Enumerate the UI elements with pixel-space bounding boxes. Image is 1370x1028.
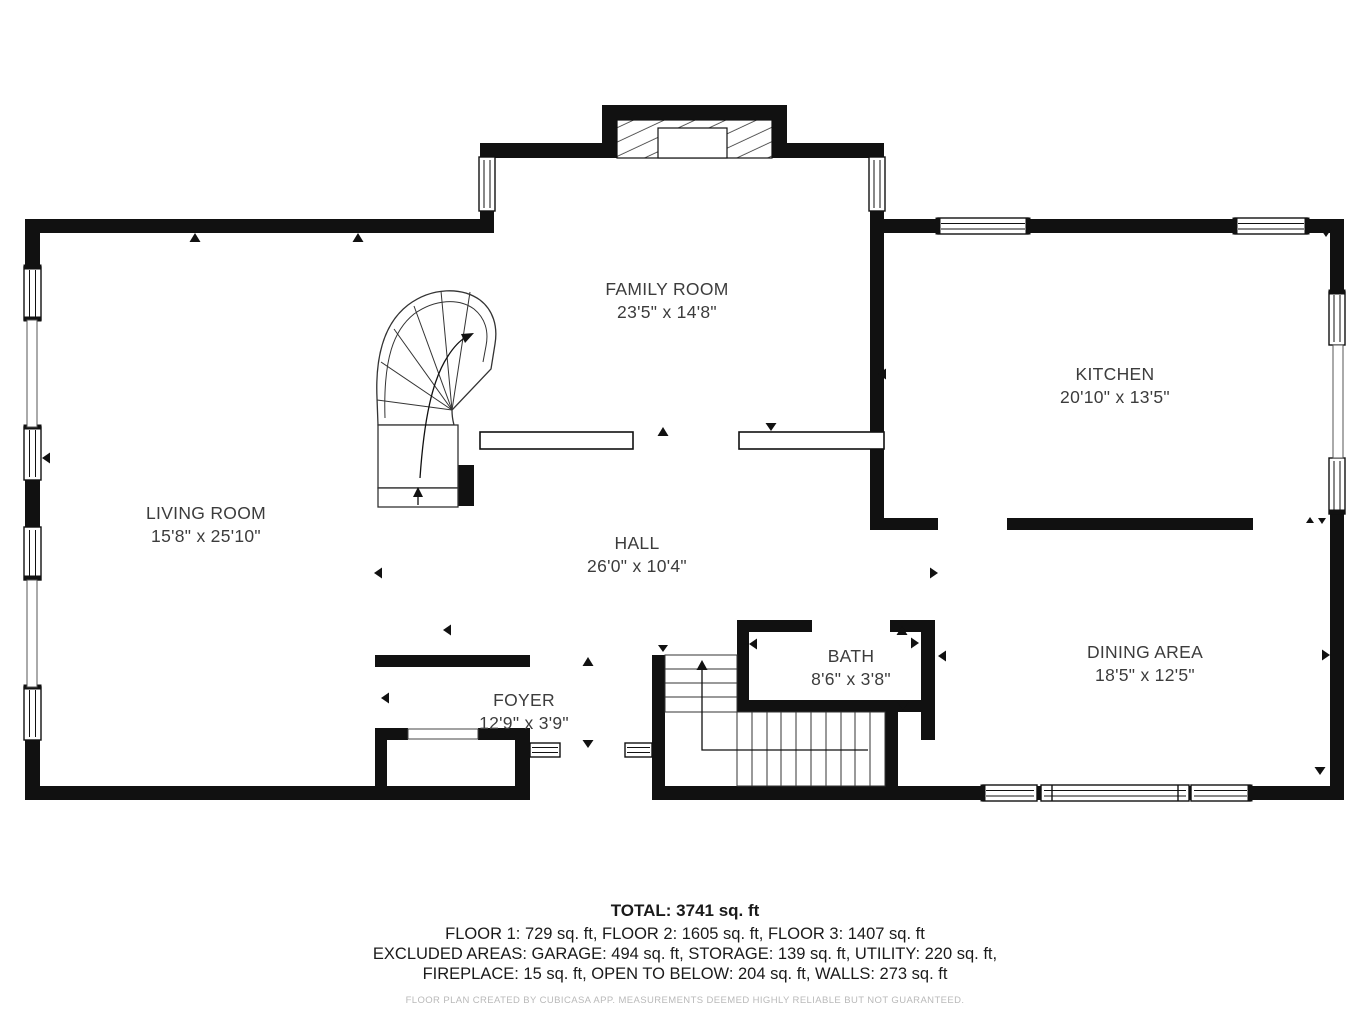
room-label-kitchen: KITCHEN 20'10" x 13'5" <box>1060 363 1170 409</box>
door-arrow-up <box>583 657 594 666</box>
room-dimensions: 26'0" x 10'4" <box>587 555 687 578</box>
hall-counters <box>480 432 884 449</box>
room-name: HALL <box>587 532 687 555</box>
room-dimensions: 18'5" x 12'5" <box>1087 664 1203 687</box>
room-label-foyer: FOYER 12'9" x 3'9" <box>479 689 569 735</box>
window <box>24 685 41 740</box>
floor-areas: FLOOR 1: 729 sq. ft, FLOOR 2: 1605 sq. f… <box>0 924 1370 944</box>
window <box>1191 785 1252 801</box>
door-arrow-down <box>658 645 668 652</box>
floor-plan-page: FAMILY ROOM 23'5" x 14'8" KITCHEN 20'10"… <box>0 0 1370 1028</box>
window <box>24 527 41 580</box>
counter <box>739 432 884 449</box>
door-arrow-right <box>1322 650 1330 661</box>
glass-panel <box>27 580 37 687</box>
glass-panel <box>27 320 37 427</box>
closet-door <box>408 729 478 739</box>
firebox <box>658 128 727 158</box>
door-arrow-up <box>353 233 364 242</box>
room-dimensions: 20'10" x 13'5" <box>1060 386 1170 409</box>
door-arrow-down <box>766 423 777 431</box>
room-name: LIVING ROOM <box>146 502 266 525</box>
window <box>1233 218 1309 234</box>
room-dimensions: 12'9" x 3'9" <box>479 712 569 735</box>
door-arrow-down <box>1318 518 1326 524</box>
door-arrow-left <box>938 651 946 662</box>
door-arrow-up <box>1306 517 1314 523</box>
window <box>24 425 41 480</box>
room-name: FAMILY ROOM <box>605 278 728 301</box>
room-dimensions: 8'6" x 3'8" <box>811 668 891 691</box>
door-arrow-left <box>42 453 50 464</box>
window <box>479 157 495 211</box>
staircase-curved <box>377 291 496 507</box>
door-arrow-down <box>583 740 594 748</box>
door-arrow-left <box>374 568 382 579</box>
excluded-areas-line1: EXCLUDED AREAS: GARAGE: 494 sq. ft, STOR… <box>0 944 1370 964</box>
window <box>869 157 885 211</box>
door-arrow-right <box>911 638 919 649</box>
room-name: BATH <box>811 645 891 668</box>
door-arrow-left <box>749 639 757 650</box>
window <box>1329 290 1345 345</box>
window <box>981 785 1037 801</box>
window <box>530 743 560 757</box>
door-arrow-up <box>190 233 201 242</box>
window <box>24 265 41 321</box>
glass-panel <box>1333 345 1343 458</box>
room-dimensions: 23'5" x 14'8" <box>605 301 728 324</box>
door-arrow-up <box>658 427 669 436</box>
window <box>625 743 652 757</box>
room-name: KITCHEN <box>1060 363 1170 386</box>
room-label-dining-area: DINING AREA 18'5" x 12'5" <box>1087 641 1203 687</box>
window <box>1041 785 1189 801</box>
fireplace-top-wall <box>602 105 787 120</box>
counter <box>480 432 633 449</box>
excluded-areas-line2: FIREPLACE: 15 sq. ft, OPEN TO BELOW: 204… <box>0 964 1370 984</box>
room-dimensions: 15'8" x 25'10" <box>146 525 266 548</box>
door-arrow-down <box>1315 767 1326 775</box>
room-name: DINING AREA <box>1087 641 1203 664</box>
room-name: FOYER <box>479 689 569 712</box>
door-arrow-left <box>443 625 451 636</box>
room-label-family-room: FAMILY ROOM 23'5" x 14'8" <box>605 278 728 324</box>
door-arrow-left <box>381 693 389 704</box>
window <box>1329 458 1345 514</box>
total-area: TOTAL: 3741 sq. ft <box>0 901 1370 921</box>
room-label-hall: HALL 26'0" x 10'4" <box>587 532 687 578</box>
door-arrow-right <box>930 568 938 579</box>
stair-newel-block <box>458 465 474 506</box>
room-label-bath: BATH 8'6" x 3'8" <box>811 645 891 691</box>
room-label-living-room: LIVING ROOM 15'8" x 25'10" <box>146 502 266 548</box>
disclaimer-text: FLOOR PLAN CREATED BY CUBICASA APP. MEAS… <box>0 995 1370 1006</box>
area-summary: TOTAL: 3741 sq. ft FLOOR 1: 729 sq. ft, … <box>0 901 1370 1006</box>
window <box>936 218 1030 234</box>
fireplace <box>617 120 772 158</box>
